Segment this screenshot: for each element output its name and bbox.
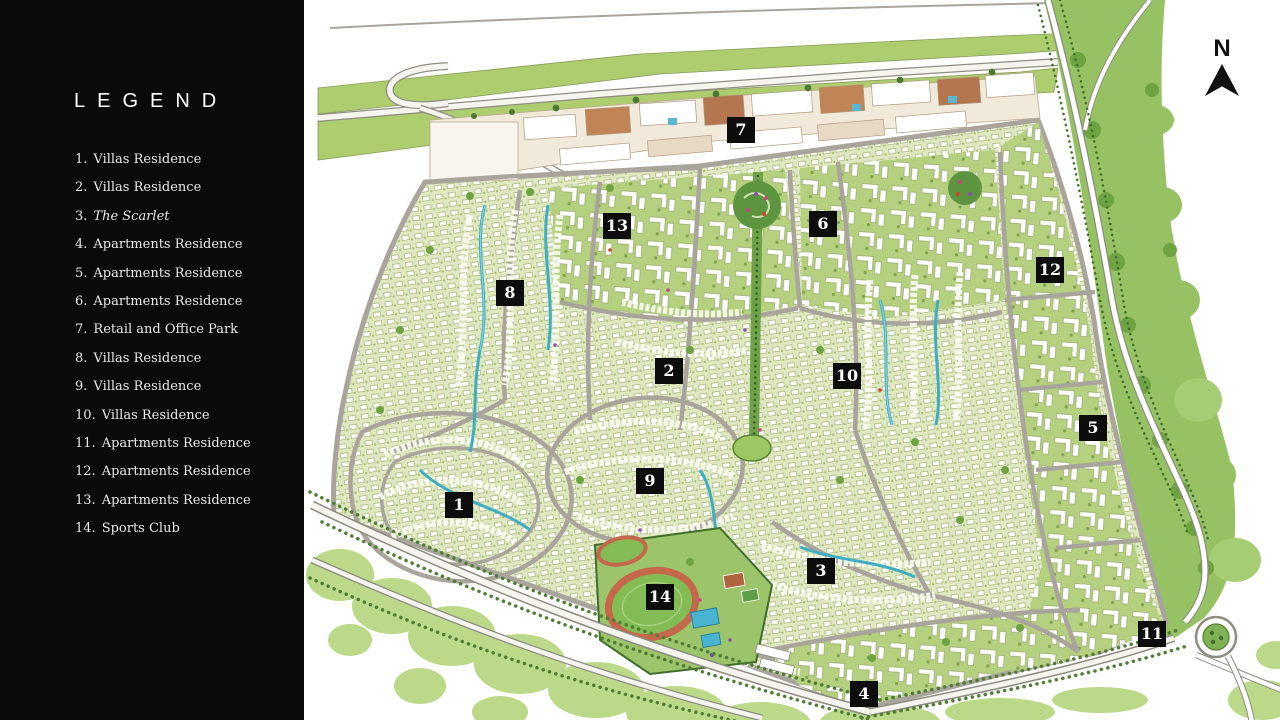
legend-item-label: Villas Residence	[93, 152, 201, 167]
map-marker-5: 5	[1079, 415, 1107, 441]
legend-item-number: 4.	[75, 237, 87, 252]
legend-item-label: The Scarlet	[93, 209, 169, 224]
legend-item-label: Villas Residence	[102, 408, 210, 423]
map-marker-11: 11	[1138, 621, 1166, 647]
map-marker-4: 4	[850, 681, 878, 707]
legend-item-number: 13.	[75, 493, 96, 508]
legend-item-label: Apartments Residence	[93, 237, 242, 252]
legend-item-9: 9.Villas Residence	[75, 373, 251, 401]
legend-item-number: 11.	[75, 436, 96, 451]
legend-item-10: 10.Villas Residence	[75, 402, 251, 430]
legend-item-number: 12.	[75, 464, 96, 479]
legend-item-8: 8.Villas Residence	[75, 345, 251, 373]
map-marker-12: 12	[1036, 257, 1064, 283]
legend-item-label: Apartments Residence	[93, 294, 242, 309]
legend-item-number: 3.	[75, 209, 87, 224]
map-marker-2: 2	[655, 358, 683, 384]
legend-item-label: Apartments Residence	[93, 266, 242, 281]
legend-item-label: Villas Residence	[93, 379, 201, 394]
map-marker-9: 9	[636, 468, 664, 494]
map-marker-13: 13	[603, 213, 631, 239]
legend-item-number: 10.	[75, 408, 96, 423]
legend-item-12: 12.Apartments Residence	[75, 458, 251, 486]
legend-item-number: 7.	[75, 322, 87, 337]
legend-item-number: 6.	[75, 294, 87, 309]
legend-item-11: 11.Apartments Residence	[75, 430, 251, 458]
map-marker-8: 8	[496, 280, 524, 306]
north-arrow-icon	[1205, 64, 1239, 96]
map-marker-6: 6	[809, 211, 837, 237]
map-marker-10: 10	[833, 363, 861, 389]
legend-title: LEGEND	[74, 90, 228, 113]
north-indicator: N	[1200, 36, 1244, 96]
legend-item-label: Sports Club	[102, 521, 180, 536]
legend-item-number: 8.	[75, 351, 87, 366]
site-map-illustration	[304, 0, 1280, 720]
legend-item-number: 2.	[75, 180, 87, 195]
legend-item-14: 14.Sports Club	[75, 515, 251, 543]
legend-item-4: 4.Apartments Residence	[75, 231, 251, 259]
legend-item-number: 9.	[75, 379, 87, 394]
legend-item-label: Villas Residence	[93, 351, 201, 366]
map-marker-3: 3	[807, 558, 835, 584]
legend-item-number: 5.	[75, 266, 87, 281]
legend-list: 1.Villas Residence2.Villas Residence3.Th…	[75, 146, 251, 543]
north-label: N	[1200, 36, 1244, 62]
legend-item-number: 1.	[75, 152, 87, 167]
legend-item-label: Apartments Residence	[102, 493, 251, 508]
legend-panel: LEGEND 1.Villas Residence2.Villas Reside…	[0, 0, 304, 720]
legend-item-6: 6.Apartments Residence	[75, 288, 251, 316]
legend-item-2: 2.Villas Residence	[75, 174, 251, 202]
legend-item-3: 3.The Scarlet	[75, 203, 251, 231]
legend-item-5: 5.Apartments Residence	[75, 260, 251, 288]
legend-item-label: Apartments Residence	[102, 436, 251, 451]
map-marker-7: 7	[727, 117, 755, 143]
legend-item-label: Villas Residence	[93, 180, 201, 195]
legend-item-1: 1.Villas Residence	[75, 146, 251, 174]
legend-item-13: 13.Apartments Residence	[75, 487, 251, 515]
legend-item-number: 14.	[75, 521, 96, 536]
legend-item-label: Apartments Residence	[102, 464, 251, 479]
map-marker-14: 14	[646, 584, 674, 610]
map-marker-1: 1	[445, 492, 473, 518]
legend-item-7: 7.Retail and Office Park	[75, 316, 251, 344]
masterplan-map: N 1234567891011121314	[304, 0, 1280, 720]
legend-item-label: Retail and Office Park	[93, 322, 238, 337]
